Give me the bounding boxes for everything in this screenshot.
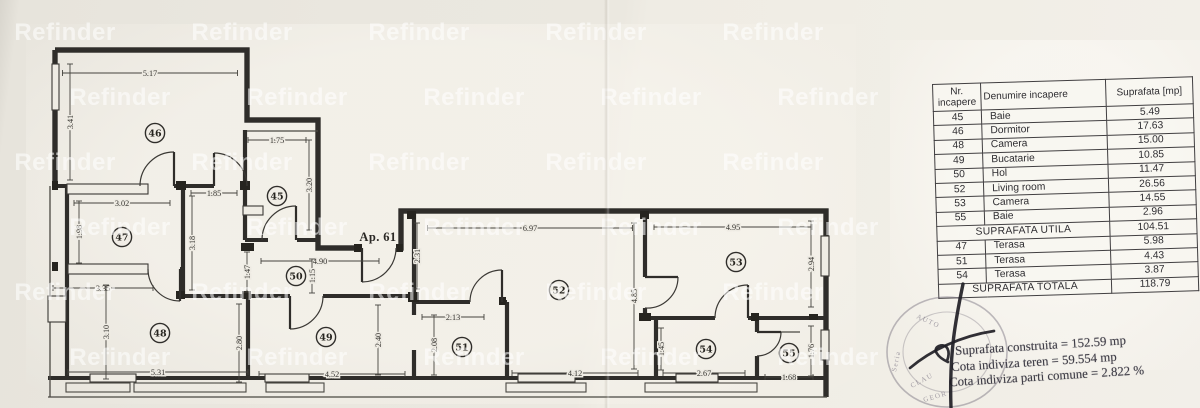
dimension: 2.08 [430, 315, 439, 375]
window [821, 236, 829, 276]
room-number-text: 50 [289, 271, 303, 282]
dimension-text: 1.85 [207, 189, 221, 198]
dimension: 1.85 [191, 189, 237, 198]
wall-niche [243, 206, 263, 215]
dimension: 2.80 [235, 304, 244, 382]
areas-table-body: 45Baie5.4946Dormitor17.6348Camera15.0049… [933, 104, 1198, 299]
dimension-text: 2.67 [697, 369, 711, 378]
dimension: 2.94 [807, 221, 816, 307]
dimension-text: 3.41 [66, 115, 75, 129]
dimension: 3.20 [305, 140, 314, 230]
dimension: 4.95 [654, 223, 812, 232]
room-number-text: 52 [552, 285, 565, 296]
dimension-text: 4.12 [568, 369, 582, 378]
apartment-label: Ap. 61 [359, 230, 396, 244]
cell-room-number: 47 [937, 240, 985, 256]
dimension-text: 5.31 [151, 368, 165, 377]
terrace-slabs [66, 383, 757, 392]
header-room-name: Denumire incapere [980, 79, 1106, 110]
dimension-text: 2.80 [235, 336, 244, 350]
dimension-text: 3.02 [115, 199, 129, 208]
cell-area: 118.79 [1111, 276, 1198, 293]
dimension-text: 2.94 [807, 257, 816, 271]
window [90, 374, 136, 382]
room-number-51: 51 [452, 337, 471, 356]
cell-room-number: 46 [934, 124, 982, 140]
dimension: 1.98 [75, 201, 84, 263]
dimension-text: 4.90 [313, 257, 327, 266]
dimension-text: 1.15 [308, 269, 317, 283]
window [52, 64, 59, 110]
seal-fragment: GEOR [922, 389, 948, 403]
room-number-text: 45 [270, 191, 283, 202]
dimension-text: 3.20 [305, 178, 314, 192]
floor-plan-drawing: 5.173.411.753.201.853.021.983.181.474.90… [0, 0, 870, 408]
seal-fragment: CLAU [909, 371, 935, 390]
dimension-text: 3.18 [188, 236, 197, 250]
dimension-text: 4.95 [726, 223, 740, 232]
cell-room-number: 51 [938, 254, 986, 270]
room-number-46: 46 [145, 123, 164, 142]
dimension: 1.76 [807, 326, 816, 376]
room-number-text: 53 [729, 257, 742, 268]
room-numbers: 4645475048495152535455 [112, 123, 798, 362]
room-number-text: 51 [455, 342, 468, 353]
slab [134, 383, 246, 392]
slab [506, 383, 586, 392]
room-number-text: 46 [148, 128, 162, 139]
dimension: 3.18 [188, 196, 197, 290]
room-number-54: 54 [696, 339, 715, 358]
dimension-text: 1.98 [75, 225, 84, 239]
dimension: 5.17 [63, 69, 238, 78]
dimension-text: 1.75 [270, 136, 284, 145]
dimension: 2.40 [374, 305, 383, 375]
room-number-text: 54 [699, 344, 713, 355]
areas-table: Nr. incapere Denumire incapere Suprafata… [932, 76, 1199, 299]
header-room-area: Suprafata [mp] [1105, 77, 1193, 107]
room-number-text: 47 [115, 232, 128, 243]
dimension-text: 2.08 [430, 338, 439, 352]
window [821, 330, 829, 360]
window [67, 184, 148, 194]
cell-room-number: 55 [936, 211, 984, 227]
dimension: 1.68 [765, 373, 813, 382]
slab [66, 383, 130, 392]
room-number-55: 55 [779, 343, 798, 362]
room-number-47: 47 [112, 227, 131, 246]
dimension: 2.13 [422, 313, 484, 322]
dimension-text: 4.52 [325, 370, 339, 379]
room-number-53: 53 [726, 252, 745, 271]
room-number-text: 55 [782, 348, 795, 359]
dimension: 1.45 [657, 328, 666, 370]
dimension-text: 2.31 [413, 249, 422, 263]
dimension: 3.41 [66, 64, 75, 180]
room-number-48: 48 [150, 323, 169, 342]
window [518, 374, 575, 382]
dimension-text: 1.47 [243, 265, 252, 279]
cell-room-number: 49 [935, 153, 983, 169]
cell-room-number: 53 [936, 196, 984, 212]
slab [266, 383, 324, 392]
dimension: 1.75 [248, 136, 306, 145]
dimension-text: 1.68 [782, 373, 796, 382]
dimension-text: 2.40 [374, 333, 383, 347]
dimension-text: 3.10 [102, 325, 111, 339]
dimension-text: 2.13 [446, 313, 460, 322]
dimension: 3.02 [74, 199, 170, 208]
dimension-text: 5.17 [143, 69, 157, 78]
room-number-text: 49 [319, 332, 333, 343]
room-number-50: 50 [286, 266, 305, 285]
window [48, 296, 66, 322]
scanned-floor-plan-page: 5.173.411.753.201.853.021.983.181.474.90… [0, 0, 1200, 408]
dimension-text: 1.76 [807, 344, 816, 358]
cell-room-number: 45 [933, 110, 981, 126]
dimension-text: 1.45 [657, 342, 666, 356]
slab [645, 383, 757, 392]
room-number-45: 45 [267, 186, 286, 205]
dimension: 3.10 [102, 285, 111, 379]
cell-room-number: 54 [938, 268, 986, 284]
room-number-52: 52 [549, 280, 568, 299]
dimension: 1.47 [243, 252, 252, 292]
door-arcs [140, 152, 781, 356]
dimension-text: 6.97 [523, 224, 537, 233]
dimension: 4.85 [630, 223, 639, 369]
dimension: 6.97 [428, 224, 633, 233]
dimension-text: 4.85 [630, 289, 639, 303]
cell-room-number: 50 [935, 168, 983, 184]
room-number-text: 48 [153, 328, 167, 339]
cell-room-number: 48 [934, 139, 982, 155]
window [68, 264, 148, 274]
header-room-number: Nr. incapere [933, 83, 982, 111]
room-number-49: 49 [316, 327, 335, 346]
cell-room-number: 52 [935, 182, 983, 198]
window [265, 374, 309, 382]
